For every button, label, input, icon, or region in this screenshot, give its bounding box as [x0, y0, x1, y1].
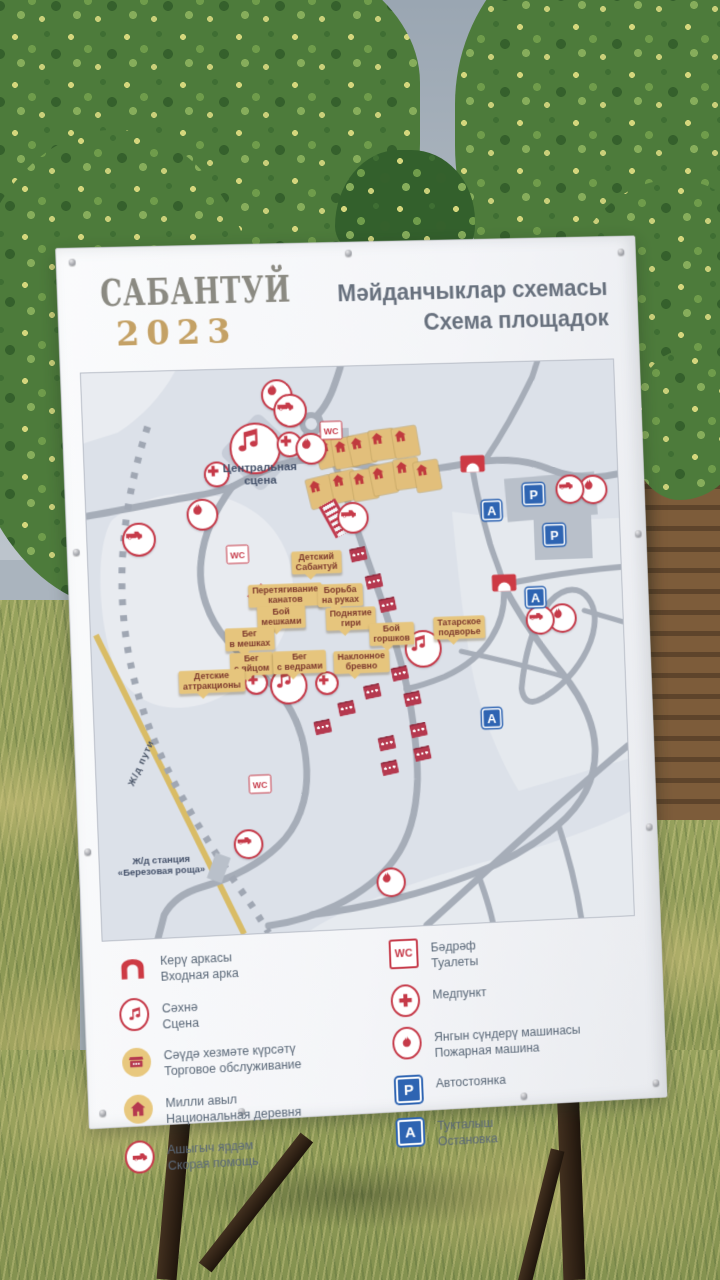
legend-item-stage: СәхнәСцена — [119, 988, 368, 1035]
national-village-icon — [123, 1094, 153, 1124]
medical-cross-icon — [278, 433, 293, 448]
area-label: Татарскоеподворье — [433, 615, 485, 640]
sign-board: САБАНТУЙ 2023 Мәйданчыклар схемасы Схема… — [55, 236, 667, 1130]
legend-item-entrance-arch: Керү аркасыВходная арка — [117, 941, 366, 987]
legend-item-trade: Сәүдә хезмәте күрсәтүТорговое обслуживан… — [121, 1035, 370, 1082]
legend-label-russian: Туалеты — [431, 953, 479, 971]
map-overlay: Центральная сцена Ж/д пути Ж/д станция «… — [81, 359, 634, 940]
central-stage-label: Центральная сцена — [223, 461, 298, 488]
legend-label-tatar: Сәхнә — [162, 998, 199, 1016]
trade-kiosk — [349, 546, 368, 563]
fire-marker — [186, 498, 219, 531]
bus-stop-marker: А — [526, 587, 546, 607]
trade-kiosk — [378, 596, 397, 613]
parking-icon: P — [396, 1076, 422, 1103]
entrance-arch-marker — [492, 574, 517, 592]
screw — [345, 250, 352, 257]
wc-icon: WC — [389, 938, 419, 969]
bus-stop-marker: А — [482, 708, 502, 728]
music-note-icon — [231, 424, 264, 457]
festival-logo: САБАНТУЙ 2023 — [85, 270, 266, 355]
village-house — [391, 425, 420, 458]
trade-kiosk — [409, 721, 428, 738]
legend-label-tatar: Автостоянка — [436, 1072, 507, 1092]
cross-marker — [315, 671, 339, 696]
trade-kiosk — [380, 759, 399, 776]
screw — [99, 1109, 106, 1116]
ambulance-marker — [121, 522, 156, 557]
entrance-arch-icon — [117, 955, 148, 980]
trade-kiosk — [363, 683, 382, 700]
screw — [646, 823, 653, 830]
map-legend: Керү аркасыВходная аркаСәхнәСценаСәүдә х… — [117, 928, 640, 1177]
legend-label-russian: Остановка — [438, 1131, 498, 1150]
logo-title: САБАНТУЙ — [99, 268, 250, 315]
area-label: Бойгоршков — [369, 622, 414, 647]
legend-item-fire-truck: Янгын сүндерү машинасыПожарная машина — [392, 1016, 636, 1063]
trade-kiosk — [390, 665, 409, 682]
flame-icon — [188, 501, 208, 521]
arch-opening — [498, 582, 511, 591]
medical-cross-icon — [205, 463, 220, 478]
ambulance-marker — [233, 829, 264, 860]
logo-year: 2023 — [87, 311, 267, 355]
legend-item-wc: WCБәдрәфТуалеты — [389, 928, 633, 974]
ambulance-icon — [235, 831, 253, 849]
area-label: Борьбана руках — [317, 583, 363, 608]
bus-stop-marker: А — [482, 500, 502, 520]
screw — [652, 1079, 659, 1086]
fire-marker — [376, 867, 406, 898]
trade-kiosk — [377, 735, 396, 752]
screw — [68, 259, 75, 266]
medpoint-icon — [390, 984, 420, 1018]
ambulance-marker — [525, 605, 555, 635]
wc-marker: WC — [248, 774, 271, 794]
map-panel: Центральная сцена Ж/д пути Ж/д станция «… — [80, 358, 635, 941]
trade-kiosk — [337, 700, 356, 717]
entrance-arch-marker — [460, 455, 485, 472]
ambulance-icon — [557, 476, 575, 494]
legend-column-right: WCБәдрәфТуалетыМедпунктЯнгын сүндерү маш… — [389, 928, 640, 1161]
arch-opening — [466, 463, 479, 472]
ambulance-icon — [124, 525, 145, 546]
area-label: Бегс ведрами — [273, 650, 327, 675]
village-house — [413, 459, 442, 492]
area-label: ДетскийСабантуй — [291, 550, 342, 575]
ambulance-marker — [555, 474, 585, 504]
trade-kiosk — [364, 573, 383, 590]
legend-item-village: Милли авылНациональная деревня — [122, 1082, 371, 1130]
medical-cross-icon — [317, 673, 331, 687]
area-label: Детскиеаттракционы — [179, 669, 246, 695]
trade-kiosk — [313, 718, 332, 735]
legend-label-russian: Входная арка — [160, 965, 239, 985]
wc-marker: WC — [226, 545, 249, 565]
bus-stop-icon: А — [397, 1119, 423, 1146]
legend-item-parking: PАвтостоянка — [394, 1063, 638, 1106]
flame-icon — [297, 435, 316, 454]
railway-track-label: Ж/д пути — [126, 738, 157, 787]
page-title: Мәйданчыклар схемасы Схема площадок — [337, 272, 609, 339]
ambulance-icon — [339, 504, 358, 523]
ambulance-marker — [337, 501, 369, 534]
ambulance-icon — [527, 607, 545, 625]
trade-service-icon — [121, 1047, 151, 1077]
area-label: Бегв мешках — [225, 627, 275, 652]
legend-label-russian: Сцена — [162, 1015, 199, 1033]
area-label: Наклонноебревно — [333, 649, 389, 674]
stage-icon — [119, 997, 150, 1031]
legend-item-medpoint: Медпункт — [390, 974, 634, 1016]
screw — [635, 530, 642, 537]
fire-truck-icon — [392, 1026, 422, 1060]
railway-station-label: Ж/д станция «Березовая роща» — [117, 854, 205, 880]
screw — [73, 549, 80, 556]
flame-icon — [378, 869, 396, 887]
ambulance-marker — [273, 393, 308, 428]
screw — [84, 848, 91, 855]
area-label: Боймешками — [257, 605, 306, 630]
ambulance-icon — [275, 396, 296, 417]
legend-item-bus-stop: АТукталышОстановка — [395, 1105, 639, 1153]
legend-label-tatar: Медпункт — [432, 984, 487, 1003]
parking-marker: P — [543, 524, 565, 546]
ambulance-icon — [124, 1139, 155, 1174]
screw — [617, 248, 624, 255]
trade-kiosk — [413, 745, 432, 762]
area-label: Перетягиваниеканатов — [248, 583, 323, 609]
trade-kiosk — [403, 690, 422, 707]
wc-marker: WC — [319, 421, 342, 440]
parking-marker: P — [523, 483, 545, 505]
legend-column-left: Керү аркасыВходная аркаСәхнәСценаСәүдә х… — [117, 941, 374, 1177]
